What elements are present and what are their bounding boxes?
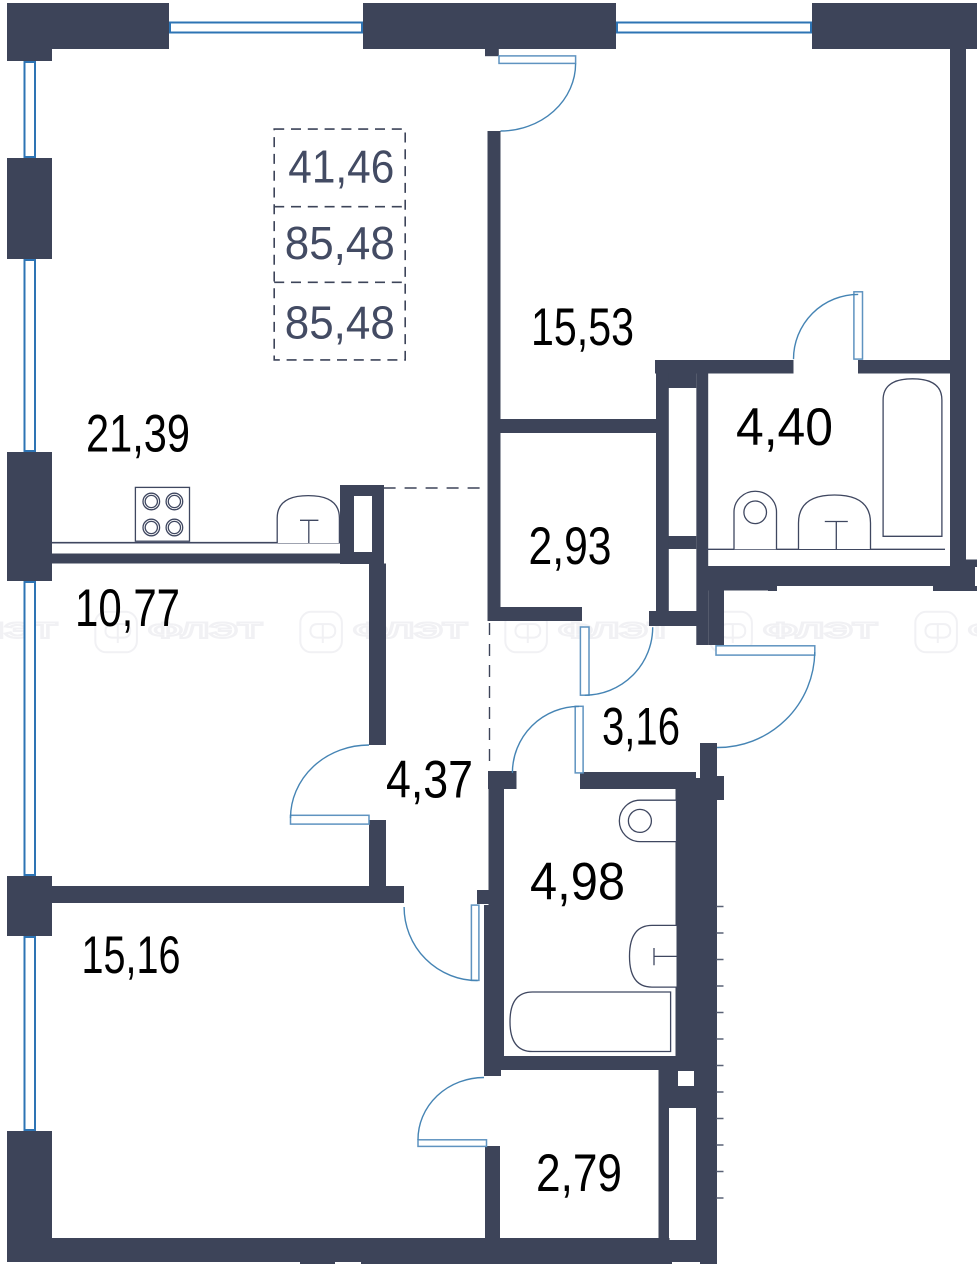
svg-text:15,16: 15,16 bbox=[82, 926, 181, 985]
svg-text:2,79: 2,79 bbox=[536, 1144, 622, 1203]
svg-text:85,48: 85,48 bbox=[285, 297, 395, 349]
svg-text:10,77: 10,77 bbox=[75, 579, 180, 638]
svg-text:4,37: 4,37 bbox=[386, 751, 473, 810]
svg-text:ФЛЭТ: ФЛЭТ bbox=[968, 618, 977, 643]
svg-text:2,93: 2,93 bbox=[529, 517, 612, 576]
svg-text:4,98: 4,98 bbox=[530, 853, 625, 912]
svg-text:41,46: 41,46 bbox=[288, 141, 394, 193]
svg-text:4,40: 4,40 bbox=[736, 398, 833, 457]
svg-text:15,53: 15,53 bbox=[531, 298, 634, 357]
svg-text:21,39: 21,39 bbox=[86, 405, 190, 464]
svg-text:85,48: 85,48 bbox=[285, 217, 395, 269]
svg-text:3,16: 3,16 bbox=[602, 698, 680, 757]
svg-text:ФЛЭТ: ФЛЭТ bbox=[763, 618, 877, 643]
